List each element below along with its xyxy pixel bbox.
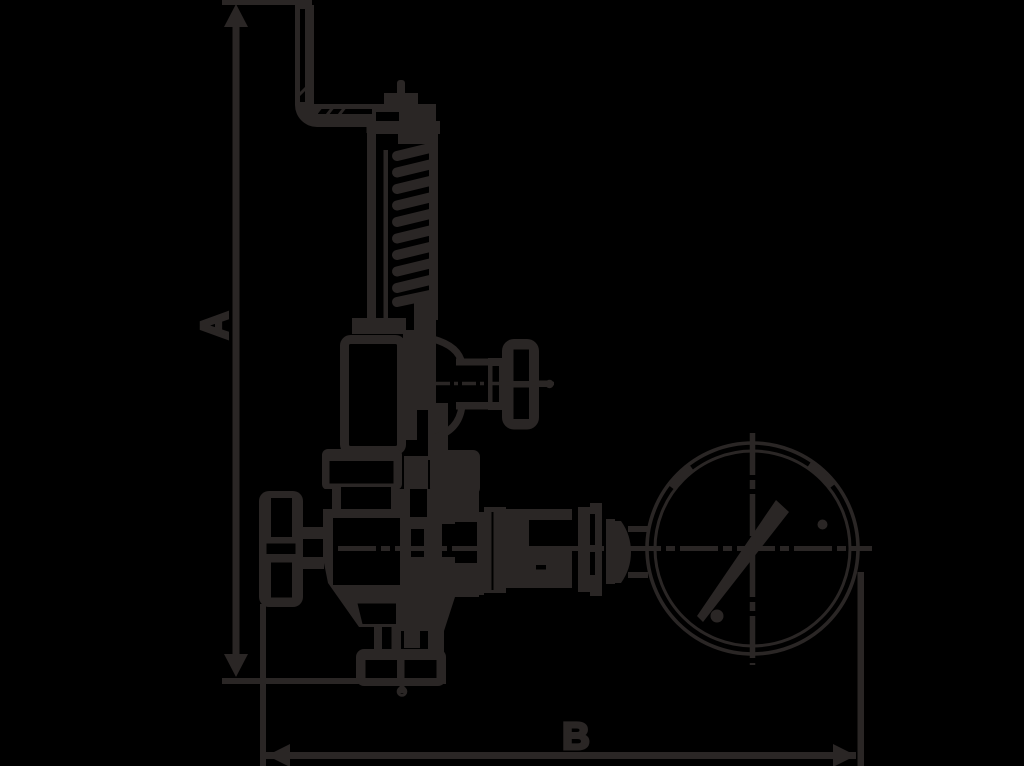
svg-text:A: A: [195, 312, 237, 339]
svg-text:B: B: [562, 716, 589, 758]
